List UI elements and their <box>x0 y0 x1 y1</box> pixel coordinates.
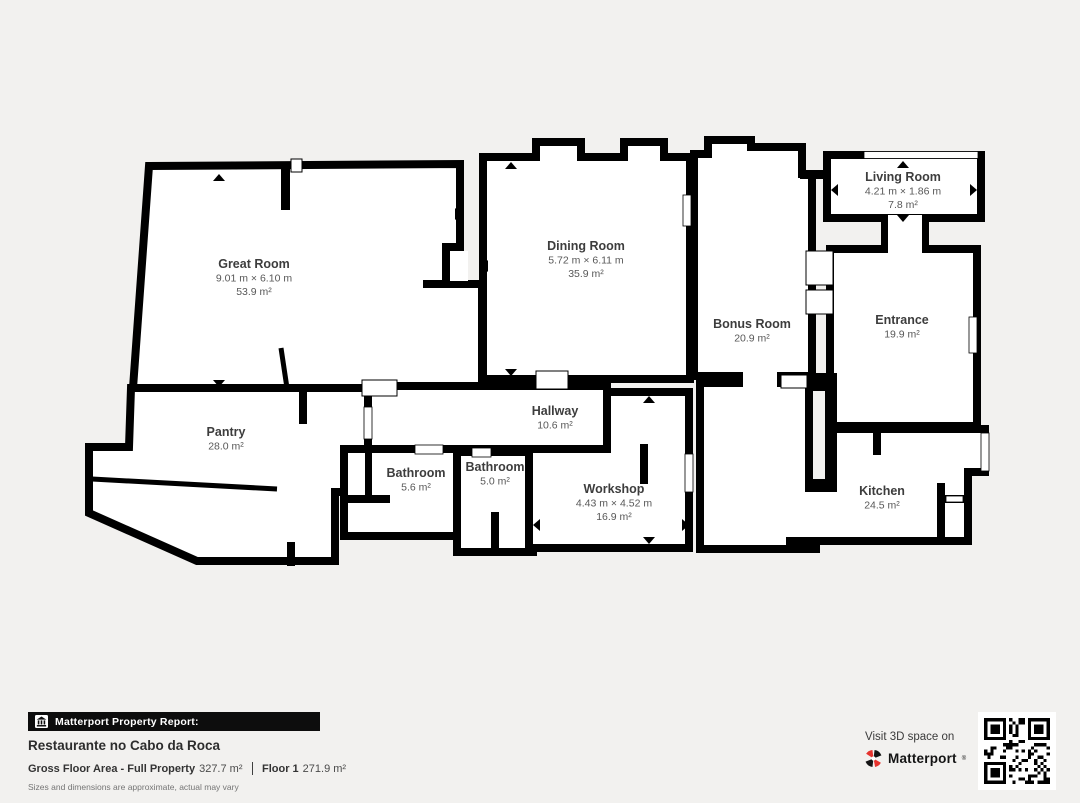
bathroom-1-door-slot <box>415 445 443 454</box>
svg-text:Great Room: Great Room <box>218 257 290 271</box>
room-label-hallway-6: Hallway10.6 m² <box>532 404 579 432</box>
bathroom-2-door-slot <box>472 448 491 457</box>
workshop-right-door-slot <box>685 454 693 492</box>
svg-text:Bonus Room: Bonus Room <box>713 317 791 331</box>
property-name: Restaurante no Cabo da Roca <box>28 738 220 753</box>
bathroom-1-stub-vertical <box>365 449 372 501</box>
living-room-window <box>864 152 978 159</box>
great-room-top-stub <box>281 164 290 210</box>
matterport-wordmark: Matterport <box>888 751 957 766</box>
kitchen-right-window <box>981 433 989 471</box>
floor-label: Floor 1 <box>262 763 299 775</box>
svg-text:53.9 m²: 53.9 m² <box>236 286 272 298</box>
svg-text:Living Room: Living Room <box>865 170 941 184</box>
svg-text:28.0 m²: 28.0 m² <box>208 441 244 453</box>
hallway-left-window <box>364 407 372 439</box>
svg-text:Kitchen: Kitchen <box>859 484 905 498</box>
gross-floor-area-value: 327.7 m² <box>199 763 242 775</box>
floor-area-summary: Gross Floor Area - Full Property 327.7 m… <box>28 762 346 775</box>
disclaimer-text: Sizes and dimensions are approximate, ac… <box>28 782 239 792</box>
great-room-right-stub <box>423 280 447 288</box>
matterport-brand: Matterport ® <box>864 749 966 768</box>
svg-text:19.9 m²: 19.9 m² <box>884 329 920 341</box>
svg-text:Hallway: Hallway <box>532 404 579 418</box>
svg-text:Workshop: Workshop <box>584 482 645 496</box>
divider <box>252 762 254 775</box>
svg-text:9.01 m × 6.10 m: 9.01 m × 6.10 m <box>216 273 292 285</box>
kitchen-closet-wall-vertical <box>937 483 945 541</box>
corridor-kitchen-wall-gap <box>813 391 825 479</box>
living-bonus-connector-wall <box>800 170 829 179</box>
living-entrance-passage <box>888 215 922 254</box>
bonus-bottom-door <box>781 375 807 388</box>
svg-text:Pantry: Pantry <box>207 425 246 439</box>
svg-text:7.8 m²: 7.8 m² <box>888 199 918 211</box>
svg-text:Entrance: Entrance <box>875 313 929 327</box>
svg-text:5.0 m²: 5.0 m² <box>480 476 510 488</box>
dining-bottom-door <box>536 371 568 389</box>
building-icon <box>35 715 48 728</box>
matterport-property-report-page: { "colors":{"background":"#f2f1ef","wall… <box>0 0 1080 803</box>
bathroom-2-stub <box>491 512 499 556</box>
svg-text:4.21 m × 1.86 m: 4.21 m × 1.86 m <box>865 186 941 198</box>
kitchen-top-stub <box>873 426 881 455</box>
trademark-mark: ® <box>962 756 966 762</box>
great-room-top-door <box>291 159 302 172</box>
bathroom-1-stub-horizontal <box>344 495 390 503</box>
great-room-bottom-door <box>362 380 397 396</box>
bonus-corridor-opening <box>743 368 777 390</box>
passage-left-wall <box>881 219 888 252</box>
matterport-logo-icon <box>864 749 883 768</box>
qr-code <box>978 712 1056 790</box>
gross-floor-area-label: Gross Floor Area - Full Property <box>28 763 195 775</box>
report-header-bar: Matterport Property Report: <box>28 712 320 731</box>
svg-text:16.9 m²: 16.9 m² <box>596 511 632 523</box>
room-label-pantry-5: Pantry28.0 m² <box>207 425 246 453</box>
svg-text:Dining Room: Dining Room <box>547 239 625 253</box>
room-label-kitchen-10: Kitchen24.5 m² <box>859 484 905 512</box>
svg-text:5.72 m × 6.11 m: 5.72 m × 6.11 m <box>548 255 624 267</box>
dining-right-door-slot <box>683 195 691 226</box>
entrance-right-window <box>969 317 977 353</box>
svg-text:Bathroom: Bathroom <box>465 460 524 474</box>
svg-text:35.9 m²: 35.9 m² <box>568 268 604 280</box>
floor-area-value: 271.9 m² <box>303 763 346 775</box>
report-header-label: Matterport Property Report: <box>55 716 199 728</box>
pantry-bottom-stub <box>287 542 295 566</box>
floor-plan: Great Room9.01 m × 6.10 m53.9 m²Dining R… <box>0 0 1080 803</box>
svg-text:Bathroom: Bathroom <box>386 466 445 480</box>
workshop-stub <box>640 444 648 484</box>
great-room-floor <box>133 164 482 388</box>
bonus-entrance-niche-1 <box>806 251 833 285</box>
svg-text:24.5 m²: 24.5 m² <box>864 500 900 512</box>
kitchen-closet-window <box>946 496 963 502</box>
svg-text:20.9 m²: 20.9 m² <box>734 333 770 345</box>
bonus-entrance-niche-2 <box>806 290 833 314</box>
passage-right-wall <box>922 219 929 252</box>
svg-text:4.43 m × 4.52 m: 4.43 m × 4.52 m <box>576 498 652 510</box>
svg-text:10.6 m²: 10.6 m² <box>537 420 573 432</box>
pantry-floor <box>89 388 368 561</box>
pantry-top-stub <box>299 388 307 424</box>
room-floors <box>89 140 985 561</box>
visit-3d-text: Visit 3D space on <box>865 731 954 743</box>
great-room-niche <box>450 251 468 281</box>
svg-text:5.6 m²: 5.6 m² <box>401 482 431 494</box>
